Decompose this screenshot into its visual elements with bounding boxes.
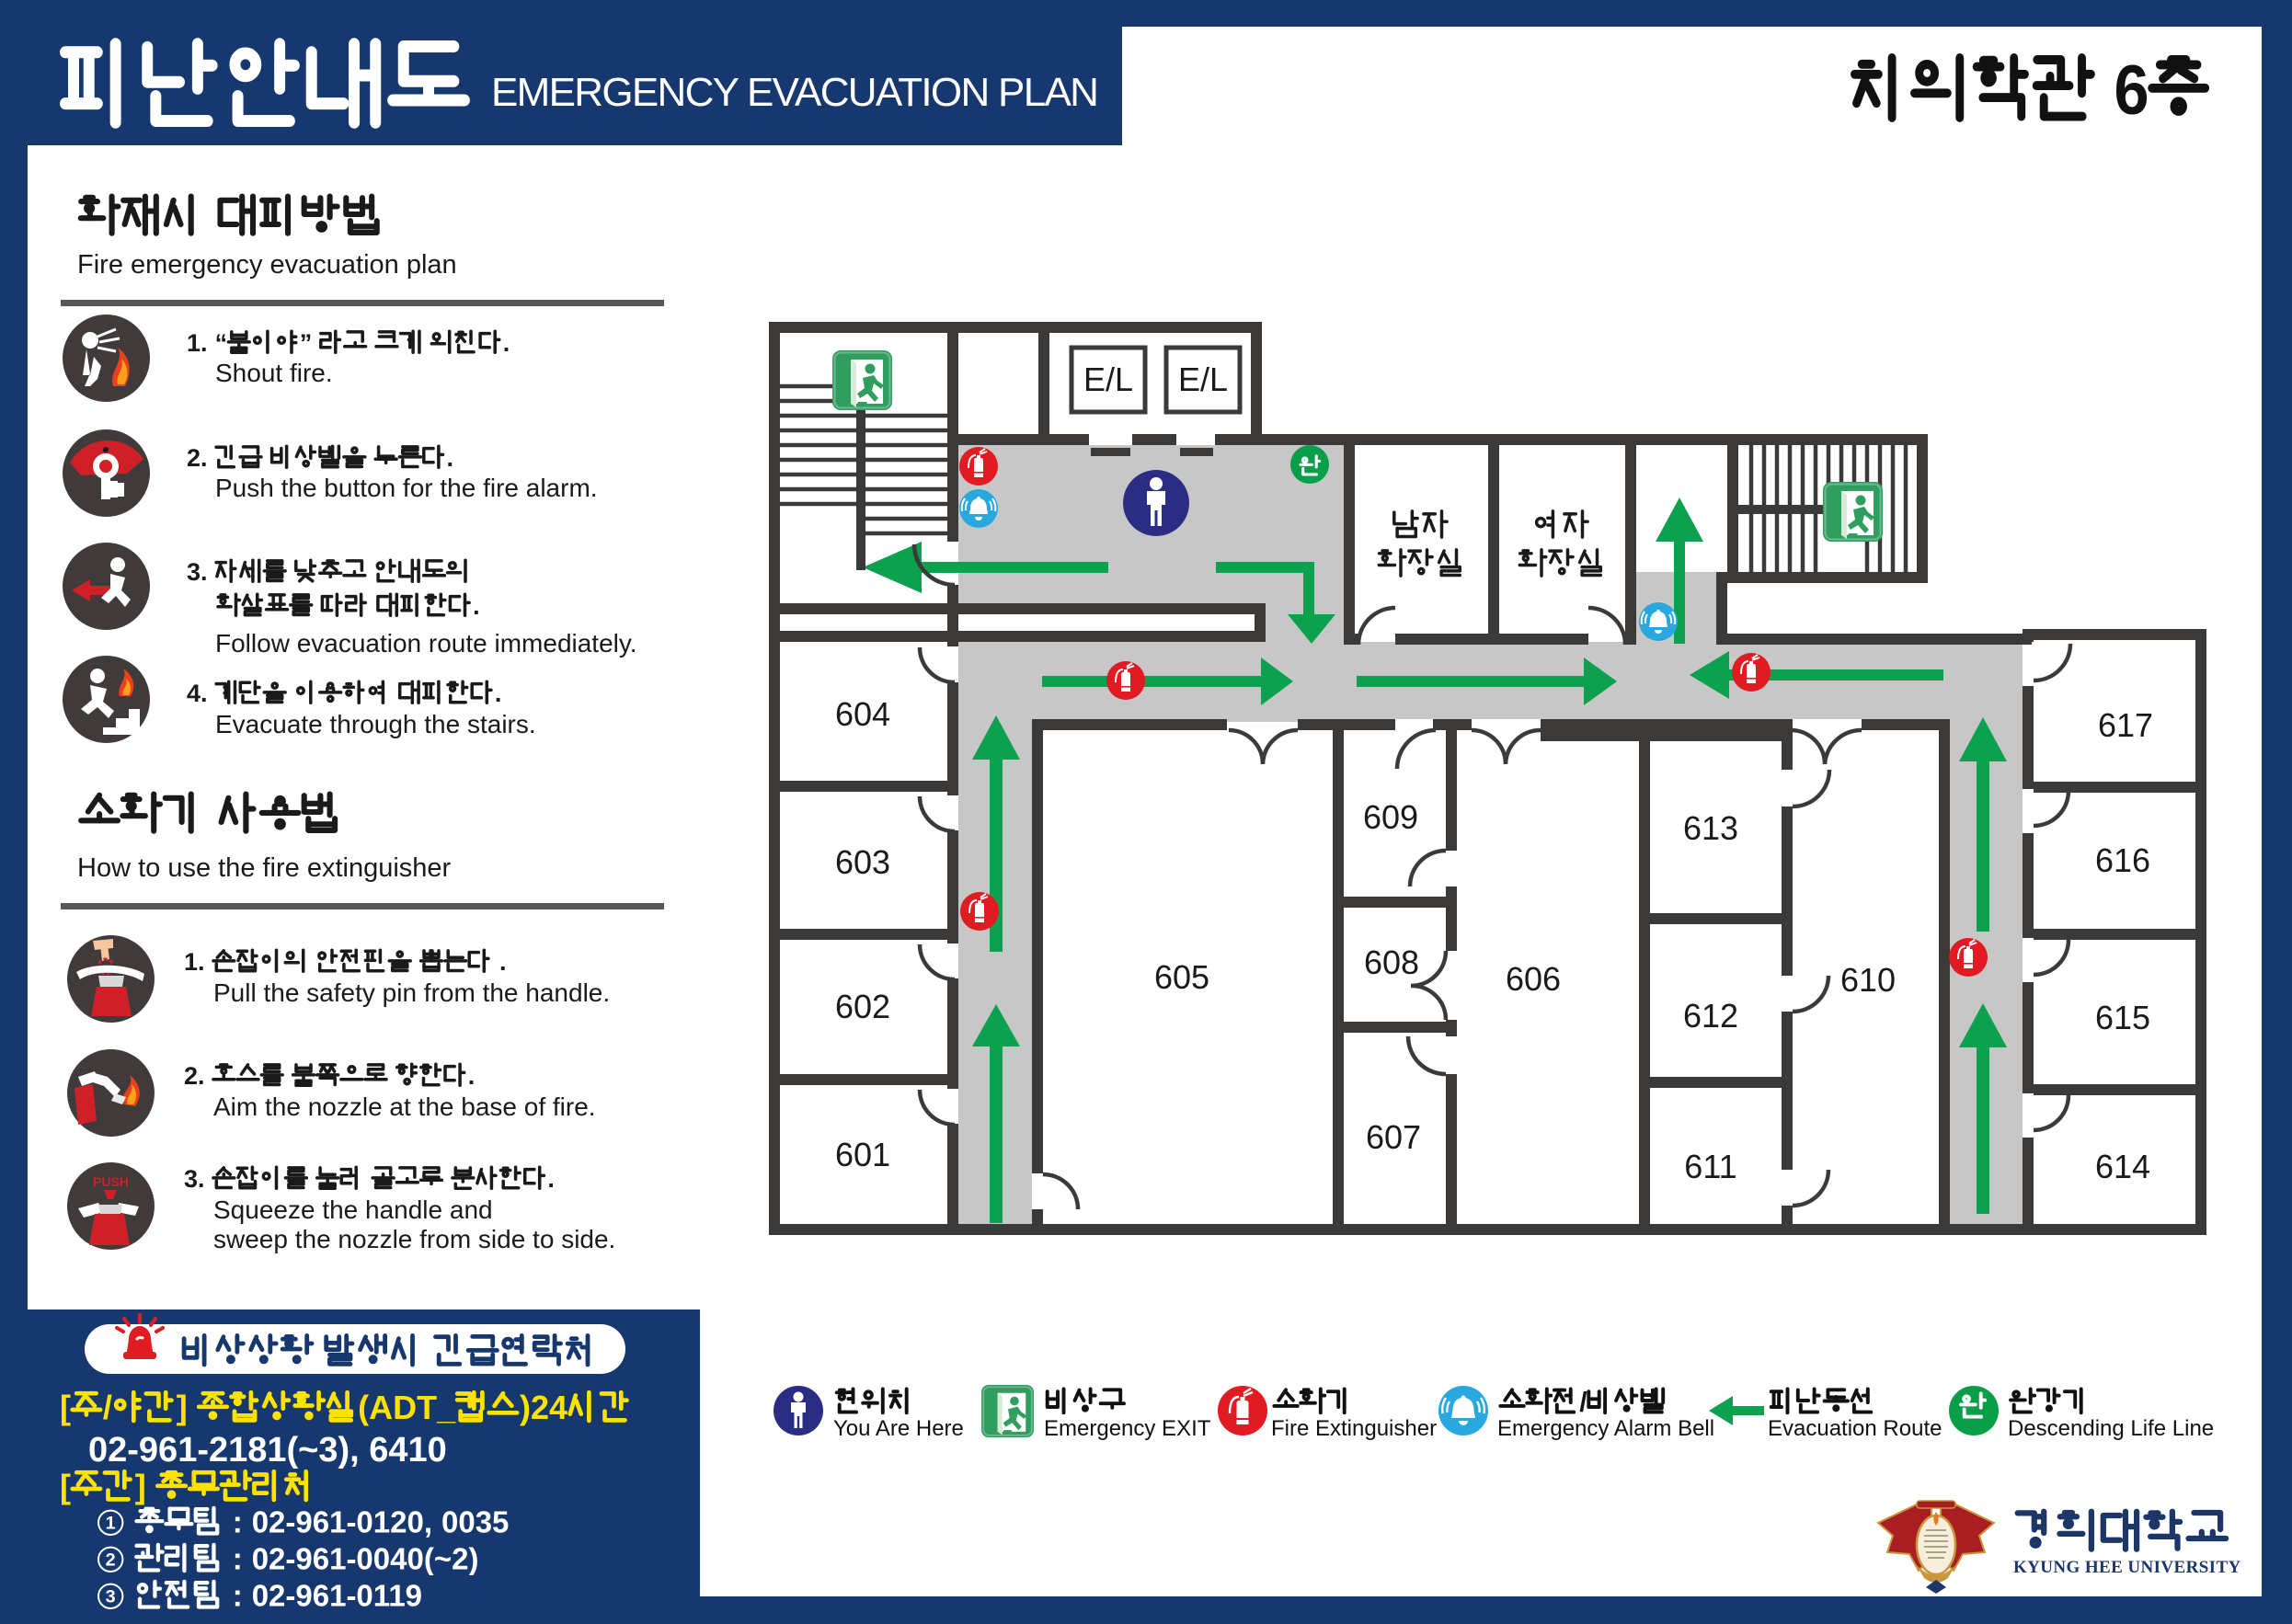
svg-text:605: 605 xyxy=(1154,958,1209,996)
svg-text:607: 607 xyxy=(1366,1118,1421,1156)
svg-text:]: ] xyxy=(135,1468,146,1505)
svg-text:608: 608 xyxy=(1364,944,1419,981)
svg-text:604: 604 xyxy=(835,695,890,733)
svg-text:02-961-0040(~2): 02-961-0040(~2) xyxy=(252,1541,479,1575)
svg-text::: : xyxy=(233,1578,243,1612)
svg-text:612: 612 xyxy=(1683,997,1738,1035)
svg-text:0035: 0035 xyxy=(441,1504,509,1538)
svg-text::: : xyxy=(233,1504,243,1538)
svg-text:616: 616 xyxy=(2095,841,2150,879)
svg-text:603: 603 xyxy=(835,843,890,881)
svg-text:[: [ xyxy=(60,1389,71,1426)
svg-text:602: 602 xyxy=(835,988,890,1025)
svg-text:617: 617 xyxy=(2098,706,2153,744)
svg-text:E/L: E/L xyxy=(1083,360,1133,398)
svg-text:]: ] xyxy=(177,1389,188,1426)
svg-text:3: 3 xyxy=(106,1587,116,1607)
svg-text:02-961-0120,: 02-961-0120, xyxy=(252,1504,432,1538)
svg-text:(ADT_: (ADT_ xyxy=(358,1389,456,1426)
svg-text:E/L: E/L xyxy=(1178,360,1228,398)
svg-text:615: 615 xyxy=(2095,999,2150,1036)
svg-text:/: / xyxy=(103,1389,112,1426)
svg-text:[: [ xyxy=(60,1468,71,1505)
svg-text:611: 611 xyxy=(1684,1148,1736,1185)
svg-text:614: 614 xyxy=(2095,1148,2150,1185)
svg-text:2: 2 xyxy=(106,1550,116,1571)
svg-text:609: 609 xyxy=(1363,798,1418,836)
svg-text:610: 610 xyxy=(1840,961,1896,999)
svg-text::: : xyxy=(233,1541,243,1575)
svg-text:606: 606 xyxy=(1506,960,1561,998)
svg-text:02-961-0119: 02-961-0119 xyxy=(252,1578,422,1612)
svg-text:601: 601 xyxy=(835,1136,890,1173)
svg-text:613: 613 xyxy=(1683,809,1738,847)
svg-text:)24: )24 xyxy=(520,1389,567,1426)
svg-text:1: 1 xyxy=(106,1514,116,1534)
svg-text:/: / xyxy=(1579,1388,1587,1417)
